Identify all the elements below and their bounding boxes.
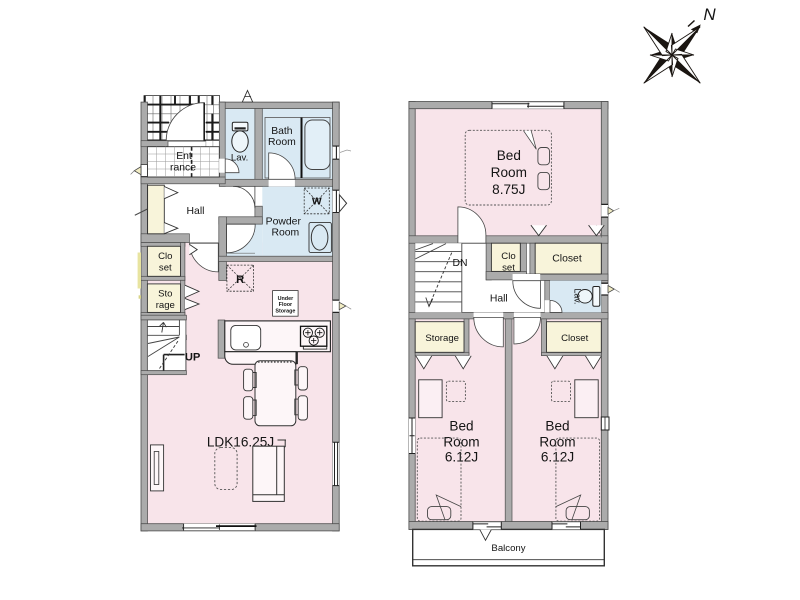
svg-text:UP: UP [185, 351, 201, 363]
svg-text:DN: DN [452, 258, 467, 269]
svg-text:Hall: Hall [187, 206, 205, 217]
svg-text:Floor: Floor [279, 302, 293, 308]
svg-text:Lav.: Lav. [573, 289, 583, 305]
svg-text:Room: Room [443, 435, 479, 450]
svg-text:Storage: Storage [425, 333, 459, 344]
svg-text:R: R [236, 274, 244, 286]
svg-text:set: set [159, 262, 172, 273]
svg-text:Powder: Powder [266, 217, 302, 228]
svg-text:Balcony: Balcony [491, 543, 525, 554]
svg-text:Bath: Bath [271, 126, 293, 137]
svg-text:Bed: Bed [497, 148, 521, 163]
svg-text:Storage: Storage [275, 309, 295, 315]
svg-text:Ent: Ent [176, 151, 192, 162]
svg-text:Room: Room [271, 227, 299, 238]
svg-text:set: set [502, 262, 515, 273]
svg-text:Bed: Bed [545, 419, 569, 434]
svg-text:Lav.: Lav. [231, 152, 248, 163]
svg-text:6.12J: 6.12J [541, 450, 574, 465]
svg-text:Sto: Sto [158, 288, 172, 299]
svg-text:Closet: Closet [561, 333, 589, 344]
svg-text:Clo: Clo [501, 251, 515, 262]
svg-text:Under: Under [278, 296, 294, 302]
svg-text:W: W [312, 197, 322, 208]
svg-text:Hall: Hall [490, 293, 508, 304]
svg-text:Room: Room [491, 165, 527, 180]
svg-text:Room: Room [539, 435, 575, 450]
svg-text:6.12J: 6.12J [445, 450, 478, 465]
svg-text:Room: Room [268, 137, 296, 148]
svg-text:Closet: Closet [552, 254, 582, 265]
svg-text:Bed: Bed [449, 419, 473, 434]
svg-text:rance: rance [170, 162, 196, 173]
svg-text:rage: rage [156, 300, 175, 311]
svg-text:N: N [703, 5, 716, 24]
svg-text:8.75J: 8.75J [492, 182, 525, 197]
svg-text:Clo: Clo [158, 251, 172, 262]
